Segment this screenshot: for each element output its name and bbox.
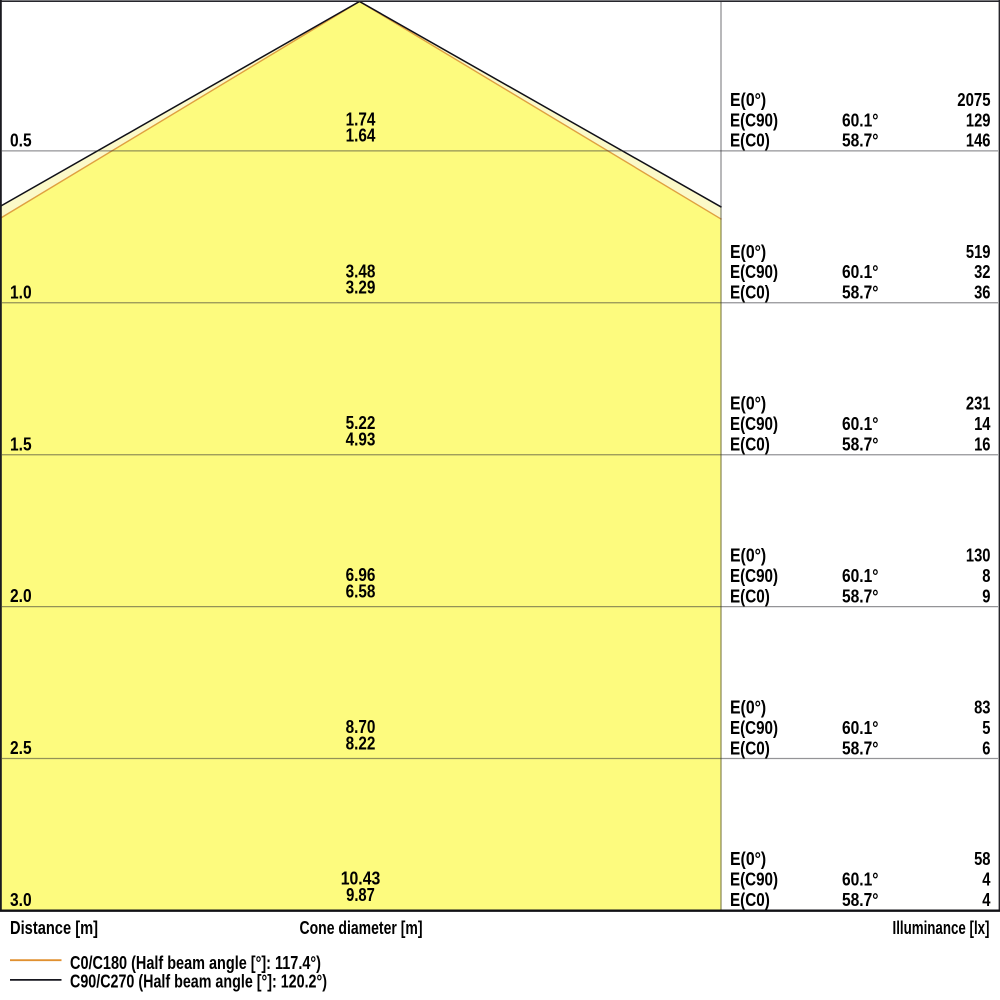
svg-text:3.29: 3.29 <box>346 278 376 298</box>
svg-text:4: 4 <box>982 870 990 890</box>
svg-text:E(C0): E(C0) <box>730 738 770 758</box>
svg-text:36: 36 <box>974 283 990 303</box>
svg-text:6: 6 <box>982 738 990 758</box>
svg-text:8.22: 8.22 <box>346 733 376 753</box>
svg-text:C0/C180 (Half beam angle [°]:: C0/C180 (Half beam angle [°]: 117.4°) <box>70 953 321 973</box>
svg-text:E(C0): E(C0) <box>730 283 770 303</box>
svg-text:58.7°: 58.7° <box>842 890 879 910</box>
svg-text:E(C0): E(C0) <box>730 586 770 606</box>
svg-text:130: 130 <box>966 546 991 566</box>
svg-text:E(C90): E(C90) <box>730 566 778 586</box>
svg-text:2075: 2075 <box>957 90 990 110</box>
svg-text:60.1°: 60.1° <box>842 870 879 890</box>
svg-text:58: 58 <box>974 849 990 869</box>
svg-text:32: 32 <box>974 262 990 282</box>
svg-text:E(C90): E(C90) <box>730 414 778 434</box>
svg-text:83: 83 <box>974 698 990 718</box>
svg-text:2.5: 2.5 <box>10 738 32 758</box>
svg-text:C90/C270 (Half beam angle [°]:: C90/C270 (Half beam angle [°]: 120.2°) <box>70 972 327 992</box>
svg-text:E(C0): E(C0) <box>730 131 770 151</box>
svg-text:E(0°): E(0°) <box>730 849 766 869</box>
svg-text:Illuminance [lx]: Illuminance [lx] <box>893 918 990 938</box>
svg-text:16: 16 <box>974 435 990 455</box>
svg-text:3.0: 3.0 <box>10 890 32 910</box>
svg-text:E(C0): E(C0) <box>730 435 770 455</box>
svg-text:E(C0): E(C0) <box>730 890 770 910</box>
svg-text:1.0: 1.0 <box>10 282 32 302</box>
svg-text:E(0°): E(0°) <box>730 242 766 262</box>
svg-text:4.93: 4.93 <box>346 430 376 450</box>
svg-text:60.1°: 60.1° <box>842 414 879 434</box>
svg-text:0.5: 0.5 <box>10 131 32 151</box>
svg-text:519: 519 <box>966 242 991 262</box>
svg-text:E(0°): E(0°) <box>730 546 766 566</box>
svg-text:58.7°: 58.7° <box>842 131 879 151</box>
svg-text:6.58: 6.58 <box>346 581 376 601</box>
svg-text:58.7°: 58.7° <box>842 283 879 303</box>
svg-text:E(0°): E(0°) <box>730 394 766 414</box>
svg-text:Cone diameter [m]: Cone diameter [m] <box>300 918 423 938</box>
svg-text:231: 231 <box>966 394 991 414</box>
svg-text:58.7°: 58.7° <box>842 738 879 758</box>
svg-text:E(C90): E(C90) <box>730 262 778 282</box>
svg-text:146: 146 <box>966 131 991 151</box>
svg-text:E(C90): E(C90) <box>730 110 778 130</box>
svg-text:E(C90): E(C90) <box>730 718 778 738</box>
svg-text:58.7°: 58.7° <box>842 586 879 606</box>
svg-text:4: 4 <box>982 890 990 910</box>
svg-text:14: 14 <box>974 414 990 434</box>
svg-text:2.0: 2.0 <box>10 586 32 606</box>
svg-text:Distance [m]: Distance [m] <box>10 918 98 938</box>
svg-text:5: 5 <box>982 718 990 738</box>
svg-text:58.7°: 58.7° <box>842 435 879 455</box>
svg-text:1.64: 1.64 <box>346 126 376 146</box>
svg-text:60.1°: 60.1° <box>842 110 879 130</box>
svg-text:60.1°: 60.1° <box>842 718 879 738</box>
svg-text:8: 8 <box>982 566 990 586</box>
svg-text:60.1°: 60.1° <box>842 262 879 282</box>
svg-text:9.87: 9.87 <box>346 885 375 905</box>
svg-text:129: 129 <box>966 110 991 130</box>
svg-text:E(0°): E(0°) <box>730 698 766 718</box>
svg-text:9: 9 <box>982 586 990 606</box>
svg-text:1.5: 1.5 <box>10 434 32 454</box>
svg-text:E(C90): E(C90) <box>730 870 778 890</box>
svg-text:60.1°: 60.1° <box>842 566 879 586</box>
svg-text:E(0°): E(0°) <box>730 90 766 110</box>
